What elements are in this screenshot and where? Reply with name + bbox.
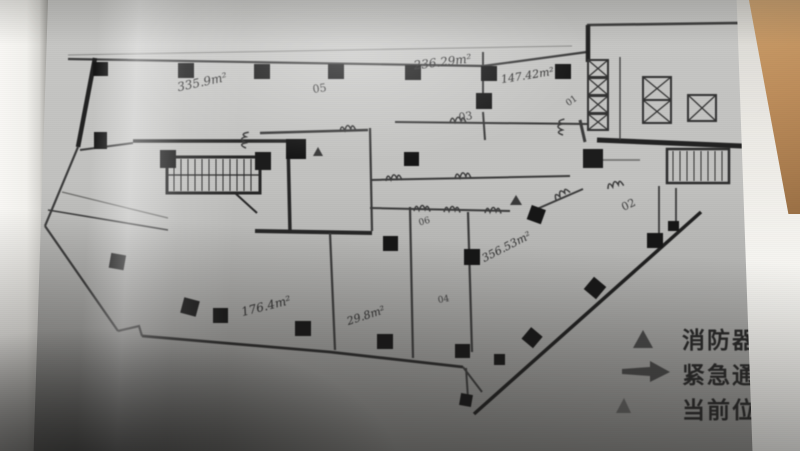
- shadow-bottom-left: [0, 0, 800, 451]
- fire-extinguisher-triangle-icon: [510, 195, 522, 205]
- interior-walls: [48, 52, 640, 358]
- elevator-bank: [588, 60, 716, 130]
- area-annotation: 147.42m²: [500, 65, 555, 86]
- area-annotation: 356.53m²: [480, 229, 533, 265]
- outer-walls: [45, 23, 744, 414]
- paper-edge-left: [0, 0, 48, 451]
- room-number: 05: [312, 81, 328, 96]
- legend-label-emergency-route: 紧急通: [682, 362, 757, 389]
- plan-layer: 335.9m² 236.29m² 147.42m² 356.53m² 176.4…: [0, 0, 800, 451]
- room-number: 04: [437, 294, 450, 306]
- shadow-bottom: [0, 0, 800, 451]
- legend: 消防器 紧急通 当前位: [616, 327, 757, 424]
- fire-extinguisher-triangle-icon: [633, 330, 653, 348]
- room-numbers: 05 03 01 02 06 04: [312, 81, 638, 306]
- room-number: 03: [458, 109, 474, 124]
- area-annotations: 335.9m² 236.29m² 147.42m² 356.53m² 176.4…: [176, 52, 555, 329]
- area-annotation: 236.29m²: [412, 52, 473, 73]
- shadow-top: [0, 0, 800, 451]
- door-symbols: [240, 117, 623, 213]
- floor-plan-drawing: 335.9m² 236.29m² 147.42m² 356.53m² 176.4…: [0, 0, 800, 451]
- stairs-center: [160, 150, 271, 213]
- legend-label-current-location: 当前位: [682, 397, 757, 424]
- room-number: 02: [619, 196, 637, 214]
- room-number: 01: [564, 94, 579, 109]
- area-annotation: 29.8m²: [344, 303, 386, 328]
- stairs-right: [583, 149, 729, 183]
- floor-plan-photo: 335.9m² 236.29m² 147.42m² 356.53m² 176.4…: [0, 0, 800, 451]
- area-annotation: 176.4m²: [240, 293, 293, 319]
- legend-label-fire-extinguisher: 消防器: [682, 327, 757, 354]
- plan-extinguisher-markers: [313, 147, 522, 205]
- glare-band: [0, 0, 800, 451]
- glare-spot: [0, 0, 800, 451]
- photo-grain: [0, 0, 800, 451]
- columns: [93, 62, 679, 407]
- area-annotation: 335.9m²: [176, 70, 229, 94]
- fire-extinguisher-triangle-icon: [313, 147, 323, 156]
- current-location-marker-icon: [616, 398, 631, 413]
- room-number: 06: [418, 216, 432, 229]
- emergency-arrow-icon: [622, 361, 670, 382]
